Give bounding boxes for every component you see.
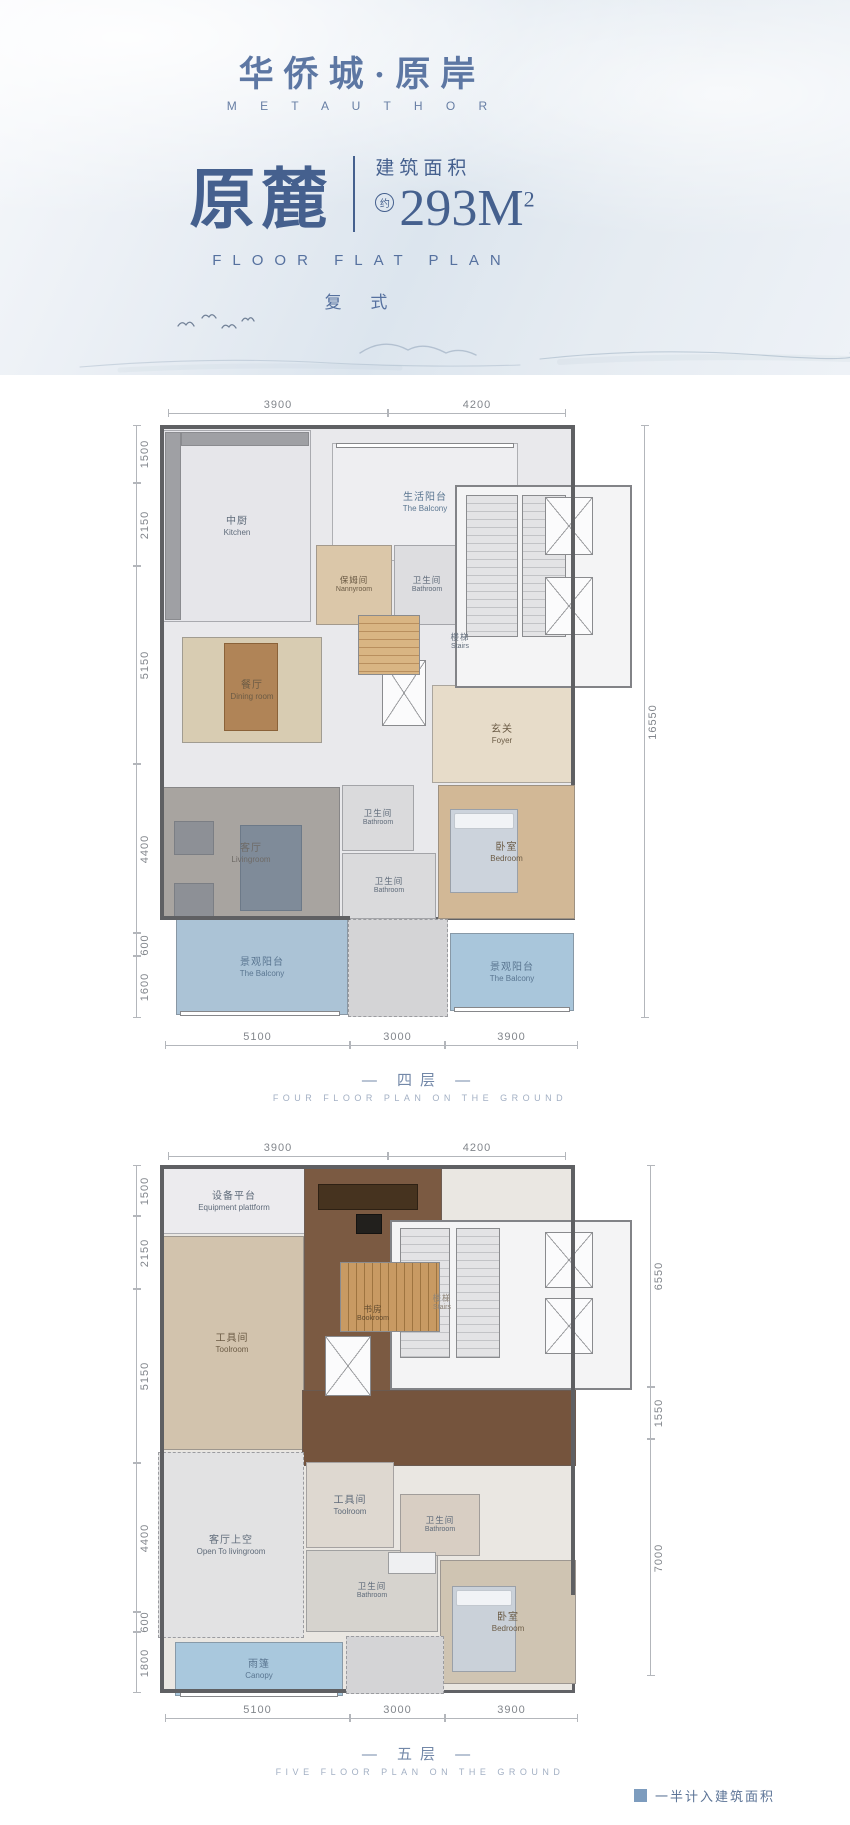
wall-segment (160, 1165, 575, 1169)
unit-type-label: 复 式 (0, 288, 724, 313)
room-bathroom-1 (394, 545, 460, 625)
dimension-label: 4200 (388, 397, 566, 414)
area-legend: 一半计入建筑面积 (634, 1786, 775, 1805)
area-value: 293M2 (399, 183, 534, 235)
dimension-label: 1600 (136, 956, 153, 1018)
title-row: 原麓 建筑面积 约 293M2 (0, 146, 724, 242)
legend-text: 一半计入建筑面积 (655, 1786, 775, 1805)
bed-icon (452, 1586, 516, 1672)
dimension-label: 3900 (445, 1702, 578, 1719)
mountains-icon (0, 315, 850, 373)
dimension-label: 5100 (165, 1029, 350, 1046)
dimension-label: 3900 (445, 1029, 578, 1046)
dimension-label: 7000 (650, 1439, 667, 1676)
elevator-shaft-icon (545, 577, 593, 635)
wall-segment (160, 1165, 164, 1693)
dimension-label: 3000 (350, 1702, 445, 1719)
furniture-block (224, 643, 278, 731)
elevator-shaft-icon (545, 497, 593, 555)
area-label: 建筑面积 (375, 153, 534, 180)
dimension-label: 5150 (136, 566, 153, 764)
furniture-block (318, 1184, 418, 1210)
wall-segment (571, 425, 575, 785)
subtitle-en: FLOOR FLAT PLAN (0, 252, 724, 269)
floor-plan-level-4: — 四层 — FOUR FLOOR PLAN ON THE GROUND 中厨K… (120, 385, 720, 1130)
unit-title: 原麓 (189, 146, 333, 242)
furniture-block (388, 1552, 436, 1574)
dimension-label: 5150 (136, 1289, 153, 1463)
room-terrace-mid (346, 1636, 444, 1694)
room-foyer (432, 685, 572, 783)
room-toolroom-left (160, 1236, 304, 1450)
room-terrace-mid (348, 919, 448, 1017)
plan5-caption-en: FIVE FLOOR PLAN ON THE GROUND (120, 1767, 720, 1777)
wall-segment (160, 1689, 346, 1693)
title-divider (353, 156, 355, 232)
furniture-block (181, 432, 309, 446)
furniture-block (356, 1214, 382, 1234)
brand-name: M E T A U T H O R (0, 99, 724, 113)
dimension-label: 2150 (136, 1216, 153, 1289)
wall-segment (160, 425, 164, 920)
dimension-label: 600 (136, 1612, 153, 1632)
room-view-balcony-right (450, 933, 574, 1011)
wall-segment (160, 425, 575, 429)
dimension-label: 16550 (644, 425, 661, 1018)
bed-icon (450, 809, 518, 893)
dimension-label: 5100 (165, 1702, 350, 1719)
dimension-label: 1500 (136, 425, 153, 483)
wall-segment (571, 1165, 575, 1595)
legend-swatch-icon (634, 1789, 647, 1802)
dimension-label: 1800 (136, 1632, 153, 1693)
room-nannyroom (316, 545, 392, 625)
window-icon (180, 1011, 340, 1016)
floorplan-poster: 华侨城·原岸 M E T A U T H O R 原麓 建筑面积 约 293M2… (0, 0, 850, 1825)
elevator-shaft-icon (545, 1232, 593, 1288)
room-canopy (175, 1642, 343, 1696)
furniture-block (174, 821, 214, 855)
dimension-label: 1550 (650, 1387, 667, 1439)
plan4-caption: — 四层 — (120, 1069, 720, 1090)
area-block: 建筑面积 约 293M2 (375, 153, 534, 235)
stairs-treads-icon (466, 495, 518, 637)
dimension-label: 4400 (136, 764, 153, 933)
room-bathroom-2 (342, 785, 414, 851)
dimension-label: 600 (136, 933, 153, 956)
room-hallway (302, 1390, 576, 1466)
floor-plan-level-5: — 五层 — FIVE FLOOR PLAN ON THE GROUND 设备平… (120, 1130, 720, 1825)
plan5-caption: — 五层 — (120, 1743, 720, 1764)
dimension-label: 3900 (168, 1140, 388, 1157)
approx-circle-icon: 约 (375, 193, 394, 212)
room-view-balcony-left (176, 919, 348, 1015)
elevator-shaft-icon (545, 1298, 593, 1354)
furniture-block (240, 825, 302, 911)
dimension-label: 1500 (136, 1165, 153, 1216)
furniture-block (165, 432, 181, 620)
furniture-block (174, 883, 214, 917)
wall-segment (160, 916, 350, 920)
project-logo: 华侨城·原岸 (0, 46, 724, 97)
room-kitchen (163, 430, 311, 622)
dimension-label: 4200 (388, 1140, 566, 1157)
dimension-label: 4400 (136, 1463, 153, 1612)
room-bathroom-3 (342, 853, 436, 919)
window-icon (336, 443, 514, 448)
room-bathroom-right (400, 1494, 480, 1556)
stairs-treads-icon (456, 1228, 500, 1358)
dimension-label: 6550 (650, 1165, 667, 1387)
window-icon (454, 1007, 570, 1012)
stairs-treads-icon (358, 615, 420, 675)
stairs-treads-icon (340, 1262, 440, 1332)
dimension-label: 3900 (168, 397, 388, 414)
dimension-label: 2150 (136, 483, 153, 566)
room-equipment-platform (160, 1168, 308, 1234)
elevator-shaft-icon (325, 1336, 371, 1396)
room-open-to-livingroom (158, 1452, 304, 1638)
header-banner: 华侨城·原岸 M E T A U T H O R 原麓 建筑面积 约 293M2… (0, 0, 850, 375)
plan4-caption-en: FOUR FLOOR PLAN ON THE GROUND (120, 1093, 720, 1103)
dimension-label: 3000 (350, 1029, 445, 1046)
room-toolroom-mid (306, 1462, 394, 1548)
